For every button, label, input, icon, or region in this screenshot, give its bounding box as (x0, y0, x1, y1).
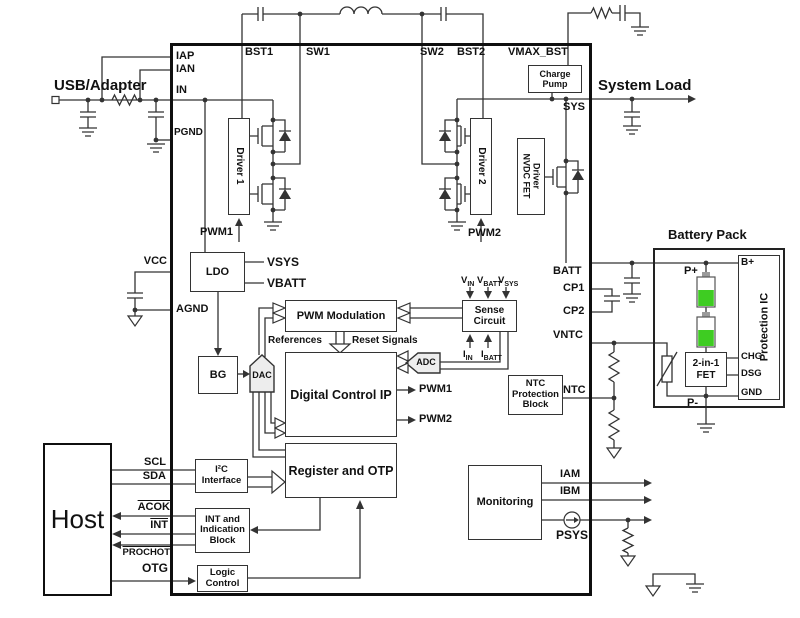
chg-label: CHG (741, 352, 762, 362)
block-diagram: Host Driver 1 Driver 2 Charge Pump Drive… (0, 0, 800, 618)
int-l3: Block (210, 536, 236, 547)
prochot-text: PROCHOT (123, 547, 171, 558)
system-load-label: System Load (598, 78, 691, 93)
vsys-sense-label: VSYS (498, 276, 518, 288)
pin-cp2: CP2 (563, 306, 584, 317)
p-minus-label: P- (687, 398, 698, 409)
pwm-modulation-block: PWM Modulation (285, 300, 397, 332)
ntc-r2 (609, 398, 619, 448)
charge-pump-l1: Charge (539, 69, 570, 79)
register-otp-block: Register and OTP (285, 443, 397, 498)
resistor (591, 8, 612, 18)
logic-l1: Logic (210, 568, 235, 579)
capacitor (612, 5, 640, 27)
pwm2-driver-label: PWM2 (468, 228, 501, 239)
fet-l1: 2-in-1 (693, 358, 720, 369)
pin-ibm: IBM (560, 486, 580, 497)
acok-text: ACOK (138, 501, 170, 513)
charge-pump-l2: Pump (542, 79, 567, 89)
vbatt-label: VBATT (267, 277, 306, 289)
battery-pack-title: Battery Pack (668, 228, 747, 241)
pin-sw2: SW2 (420, 47, 444, 58)
vin-label: VIN (461, 276, 474, 288)
vsys-sub: SYS (504, 281, 518, 288)
pin-prochot: PROCHOT (95, 548, 170, 558)
vcc-agnd-network (127, 272, 170, 326)
sense-l2: Circuit (474, 316, 506, 327)
pin-agnd: AGND (176, 304, 208, 315)
int-indication-block: INT and Indication Block (195, 508, 250, 553)
gnd-label: GND (741, 388, 762, 398)
ntc-r1 (609, 343, 619, 398)
pin-vntc: VNTC (553, 330, 583, 341)
ground (631, 27, 649, 35)
arrow-right (688, 95, 696, 103)
analog-ground (607, 448, 621, 458)
ground (79, 128, 97, 136)
bst2-cap (441, 7, 446, 21)
ibatt-sub: BATT (484, 355, 502, 362)
pin-cp1: CP1 (563, 283, 584, 294)
ldo-block: LDO (190, 252, 245, 292)
sense-l1: Sense (475, 305, 504, 316)
pin-otg: OTG (95, 562, 168, 574)
digital-control-ip-block: Digital Control IP (285, 352, 397, 437)
usb-adapter-label: USB/Adapter (54, 78, 147, 93)
charge-pump-block: Charge Pump (528, 65, 582, 93)
logic-control-block: Logic Control (197, 565, 248, 592)
bg-block: BG (198, 356, 238, 394)
input-cap1 (80, 100, 96, 128)
psys-resistor (623, 520, 633, 556)
pin-vcc: VCC (95, 256, 167, 267)
pin-bst1: BST1 (245, 47, 273, 58)
pin-scl: SCL (95, 457, 166, 468)
dac-label: DAC (250, 371, 274, 380)
sense-circuit-block: Sense Circuit (462, 300, 517, 332)
dsg-label: DSG (741, 369, 762, 379)
fet-l2: FET (697, 370, 716, 381)
iin-sub: IN (466, 355, 473, 362)
iin-label: IIN (463, 350, 473, 362)
pwm2-output-label: PWM2 (419, 414, 452, 425)
nvdc-fet-driver-label: Driver NVDC FET (521, 154, 542, 199)
pin-ian: IAN (176, 64, 195, 75)
sys-cap (624, 99, 640, 126)
pin-acok: ACOK (95, 502, 170, 513)
pin-in: IN (176, 85, 187, 96)
ntc-protection-block: NTC Protection Block (508, 375, 563, 415)
pwm1-output-label: PWM1 (419, 384, 452, 395)
monitoring-label: Monitoring (477, 496, 534, 508)
pwm1-driver-label: PWM1 (200, 227, 233, 238)
int-text: INT (150, 519, 168, 531)
nvdc-label-nvdc-fet: NVDC FET (521, 154, 531, 199)
bg-label: BG (210, 369, 227, 381)
p-plus-label: P+ (684, 266, 698, 277)
inductor (340, 7, 382, 14)
analog-ground (128, 316, 142, 326)
ground (623, 294, 641, 302)
pin-sw1: SW1 (306, 47, 330, 58)
driver2-label: Driver 2 (475, 147, 487, 184)
ground (623, 126, 641, 134)
pin-sda: SDA (95, 471, 166, 482)
ground (697, 424, 715, 432)
reset-signals-label: Reset Signals (352, 336, 418, 346)
pin-iap: IAP (176, 51, 194, 62)
usb-terminal (52, 97, 59, 104)
adc-label: ADC (414, 358, 438, 367)
vin-sub: IN (467, 281, 474, 288)
pin-bst2: BST2 (457, 47, 485, 58)
batt-cap (624, 263, 640, 294)
ground (686, 584, 704, 592)
monitoring-block: Monitoring (468, 465, 542, 540)
ground-tie (646, 574, 704, 596)
ground (147, 144, 165, 152)
analog-ground (621, 556, 635, 566)
logic-l2: Control (206, 579, 240, 590)
register-label: Register and OTP (289, 464, 394, 478)
nvdc-label-driver: Driver (531, 154, 541, 199)
cp-cap (592, 289, 620, 312)
pin-sys: SYS (563, 102, 585, 113)
dcip-label: Digital Control IP (290, 388, 391, 402)
i2c-l2: Interface (202, 476, 242, 487)
driver1-label: Driver 1 (233, 147, 245, 184)
ibatt-label: IBATT (481, 350, 502, 362)
pin-int: INT (95, 520, 168, 531)
ldo-label: LDO (206, 266, 229, 278)
pin-ntc: NTC (563, 385, 586, 396)
input-cap2 (148, 100, 164, 140)
references-label: References (268, 336, 322, 346)
pin-iam: IAM (560, 469, 580, 480)
bst1-cap (258, 7, 263, 21)
analog-ground (646, 586, 660, 596)
pin-psys: PSYS (556, 529, 588, 541)
vsys-label: VSYS (267, 256, 299, 268)
pin-pgnd: PGND (174, 128, 203, 138)
ntc-prot-l3: Block (523, 400, 549, 411)
b-plus-label: B+ (741, 258, 754, 268)
pin-vmax-bst: VMAX_BST (508, 47, 568, 58)
pin-batt: BATT (553, 266, 582, 277)
pwm-modulation-label: PWM Modulation (297, 310, 386, 322)
two-in-one-fet-block: 2-in-1 FET (685, 352, 727, 387)
i2c-interface-block: I²C Interface (195, 459, 248, 493)
